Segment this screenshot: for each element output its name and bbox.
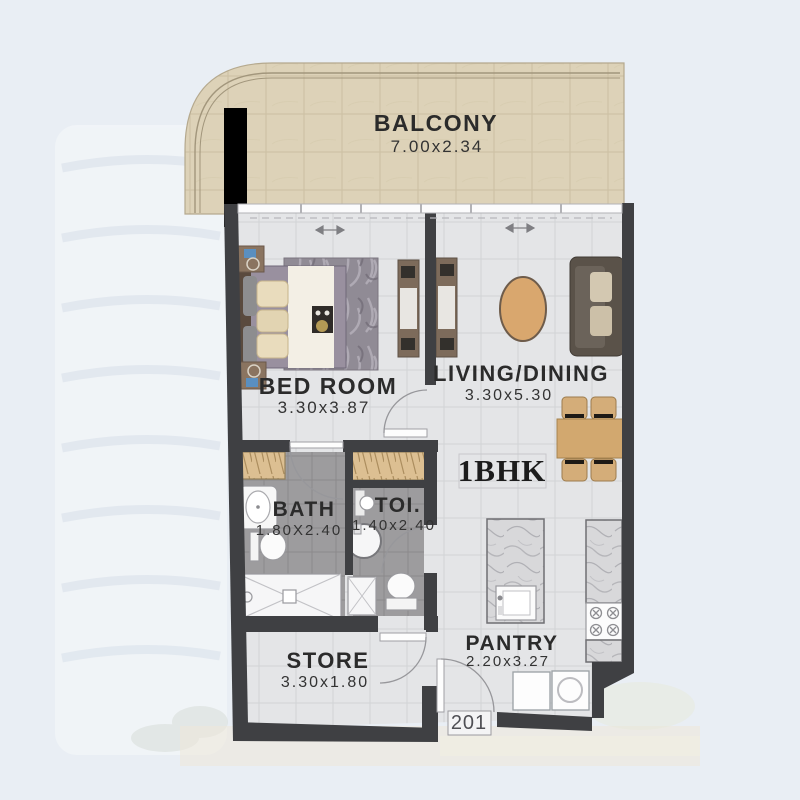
dining-chair-arm <box>594 460 613 464</box>
toi-toilet-bowl <box>387 573 415 599</box>
bath-sink-drain <box>256 505 260 509</box>
dining-table <box>557 419 623 458</box>
shower-drain <box>283 590 296 603</box>
unit-type-box: 1BHK <box>458 453 546 488</box>
room-dims-toilet: 1.40x2.40 <box>352 517 436 534</box>
unit-number-label: 201 <box>451 712 487 734</box>
dining-chair-arm <box>594 414 613 418</box>
store-door-leaf <box>380 633 426 641</box>
room-dims-living: 3.30x5.30 <box>465 387 553 404</box>
window-glass <box>238 204 622 213</box>
sofa-cushion <box>590 306 612 336</box>
wardrobe <box>348 452 425 480</box>
toi-top-wall <box>345 480 430 488</box>
bed-pillow <box>257 310 288 332</box>
bedroom-bath-wall-left <box>236 440 290 452</box>
wardrobe <box>237 452 285 479</box>
bed-pillow <box>243 276 257 316</box>
tv-unit-bedroom-item <box>401 266 415 278</box>
tv-unit-living-item <box>440 264 454 276</box>
room-dims-bath: 1.80X2.40 <box>256 522 342 539</box>
bed-tray-decor <box>316 320 328 332</box>
kitchen-counter <box>586 520 622 603</box>
entrance-door-leaf <box>437 659 444 712</box>
kitchen-counter-lower <box>586 640 622 662</box>
kitchen-dish-rack <box>498 606 503 615</box>
pantry-step-wall <box>592 686 604 718</box>
dining-chair-arm <box>565 414 584 418</box>
bed-tray-decor <box>316 311 321 316</box>
right-wall <box>622 203 634 663</box>
room-label-bedroom: BED ROOM <box>259 373 398 399</box>
room-label-living: LIVING/DINING <box>433 361 609 386</box>
room-dims-balcony: 7.00x2.34 <box>391 137 484 156</box>
faded-building-backdrop <box>55 125 228 755</box>
tv-unit-bedroom-top <box>400 288 417 329</box>
room-dims-store: 3.30x1.80 <box>281 674 369 691</box>
room-label-bath: BATH <box>273 498 336 521</box>
toi-right-wall-upper <box>424 452 437 525</box>
bedroom-door-leaf <box>384 429 427 437</box>
store-right-wall <box>422 686 438 730</box>
kitchen-faucet <box>498 596 503 601</box>
unit-number-box: 201 <box>448 711 491 735</box>
nightstand-decor <box>244 249 256 258</box>
oval-table <box>500 277 546 341</box>
bed-pillow <box>243 326 257 364</box>
bed-pillow <box>257 334 288 358</box>
bed-pillow <box>257 281 288 307</box>
room-label-toilet: TOI. <box>375 494 421 517</box>
bedroom-bath-wall-right <box>343 440 438 452</box>
floor-plan-drawing: BALCONY 7.00x2.34 BED ROOM 3.30x3.87 LIV… <box>0 0 800 800</box>
bath-toi-divider <box>345 452 353 575</box>
fridge <box>513 672 550 710</box>
tv-unit-living-item <box>440 338 454 350</box>
bedroom-living-partition <box>425 204 436 385</box>
bath-store-wall <box>236 616 378 632</box>
room-label-balcony: BALCONY <box>374 110 498 136</box>
tv-unit-living-top <box>438 286 455 329</box>
bed-tray-decor <box>325 311 330 316</box>
toi-basin <box>360 496 374 510</box>
tv-unit-bedroom-item <box>401 338 415 350</box>
dining-chair-arm <box>565 460 584 464</box>
room-label-store: STORE <box>287 648 370 673</box>
room-dims-pantry: 2.20x3.27 <box>466 653 550 670</box>
store-door-jamb <box>426 616 438 632</box>
room-label-pantry: PANTRY <box>466 632 559 655</box>
kitchen-sink-basin <box>503 591 530 615</box>
bath-door-leaf <box>290 442 343 448</box>
sofa-cushion <box>590 272 612 302</box>
nightstand-decor <box>246 378 258 387</box>
floor-plan-page: BALCONY 7.00x2.34 BED ROOM 3.30x3.87 LIV… <box>0 0 800 800</box>
room-dims-bedroom: 3.30x3.87 <box>278 398 371 417</box>
toi-toilet-tank <box>386 598 417 610</box>
unit-type-label: 1BHK <box>458 453 546 488</box>
